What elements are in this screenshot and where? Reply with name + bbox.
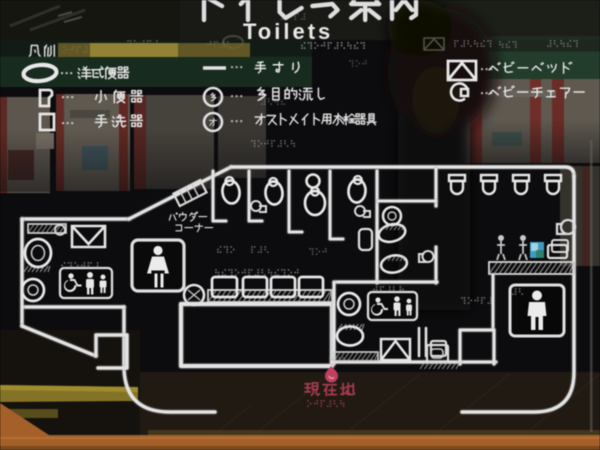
svg-text:Toilets: Toilets [243,19,333,44]
